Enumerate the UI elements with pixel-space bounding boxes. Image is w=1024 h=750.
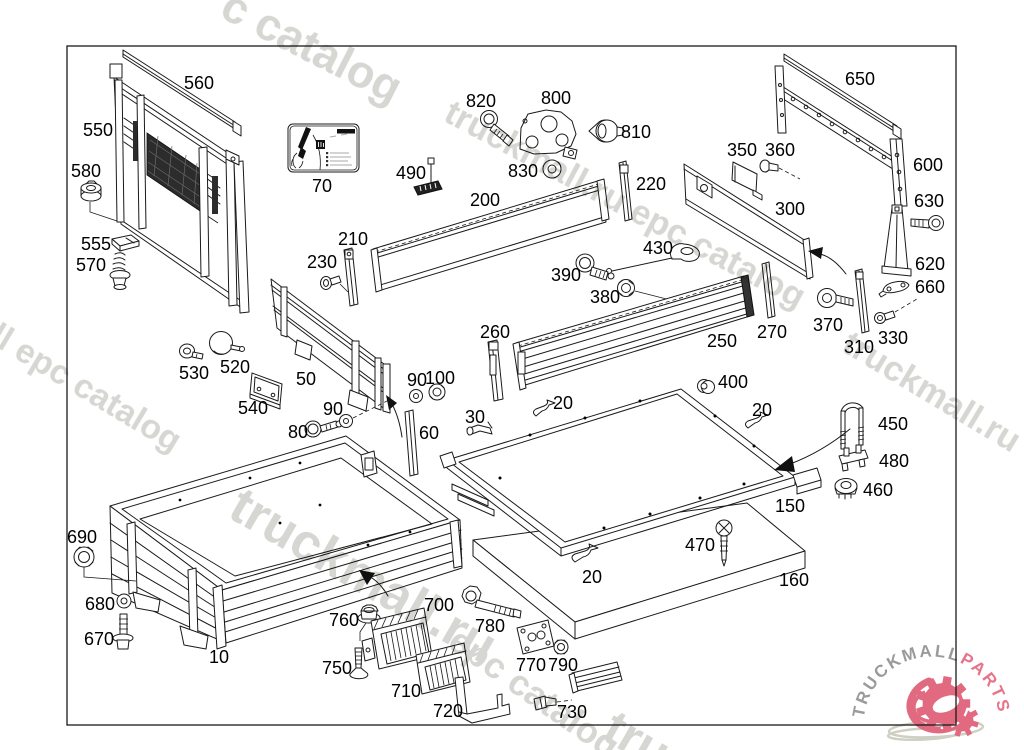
svg-text:230: 230 xyxy=(307,252,337,272)
svg-text:680: 680 xyxy=(85,594,115,614)
svg-text:580: 580 xyxy=(71,161,101,181)
svg-text:10: 10 xyxy=(209,647,229,667)
svg-text:600: 600 xyxy=(913,155,943,175)
svg-text:450: 450 xyxy=(878,414,908,434)
svg-text:650: 650 xyxy=(845,69,875,89)
svg-text:460: 460 xyxy=(863,480,893,500)
svg-text:260: 260 xyxy=(480,322,510,342)
svg-text:570: 570 xyxy=(76,255,106,275)
svg-text:200: 200 xyxy=(470,190,500,210)
svg-text:300: 300 xyxy=(775,199,805,219)
svg-text:380: 380 xyxy=(590,287,620,307)
svg-text:710: 710 xyxy=(391,681,421,701)
svg-text:800: 800 xyxy=(541,88,571,108)
svg-text:20: 20 xyxy=(582,567,602,587)
svg-text:555: 555 xyxy=(81,234,111,254)
svg-text:50: 50 xyxy=(296,369,316,389)
svg-text:390: 390 xyxy=(551,265,581,285)
svg-text:670: 670 xyxy=(84,629,114,649)
svg-text:760: 760 xyxy=(329,610,359,630)
svg-text:360: 360 xyxy=(765,140,795,160)
svg-text:520: 520 xyxy=(220,357,250,377)
svg-text:370: 370 xyxy=(813,315,843,335)
svg-text:80: 80 xyxy=(288,422,308,442)
svg-text:750: 750 xyxy=(322,658,352,678)
svg-text:810: 810 xyxy=(621,122,651,142)
svg-text:70: 70 xyxy=(312,176,332,196)
svg-text:720: 720 xyxy=(433,701,463,721)
svg-text:530: 530 xyxy=(179,363,209,383)
svg-text:250: 250 xyxy=(707,331,737,351)
svg-text:400: 400 xyxy=(718,372,748,392)
svg-text:660: 660 xyxy=(915,277,945,297)
svg-text:560: 560 xyxy=(184,73,214,93)
svg-text:630: 630 xyxy=(914,191,944,211)
svg-text:270: 270 xyxy=(757,322,787,342)
svg-text:160: 160 xyxy=(779,570,809,590)
svg-text:20: 20 xyxy=(553,393,573,413)
svg-text:480: 480 xyxy=(879,451,909,471)
svg-text:350: 350 xyxy=(727,140,757,160)
svg-text:540: 540 xyxy=(238,398,268,418)
svg-text:690: 690 xyxy=(67,527,97,547)
svg-text:790: 790 xyxy=(548,655,578,675)
svg-text:210: 210 xyxy=(338,229,368,249)
svg-text:90: 90 xyxy=(323,399,343,419)
svg-text:490: 490 xyxy=(396,163,426,183)
svg-text:620: 620 xyxy=(915,254,945,274)
svg-text:60: 60 xyxy=(419,423,439,443)
svg-text:30: 30 xyxy=(465,407,485,427)
svg-text:470: 470 xyxy=(685,535,715,555)
svg-text:100: 100 xyxy=(425,368,455,388)
svg-text:150: 150 xyxy=(775,496,805,516)
svg-text:550: 550 xyxy=(83,120,113,140)
svg-text:20: 20 xyxy=(752,400,772,420)
